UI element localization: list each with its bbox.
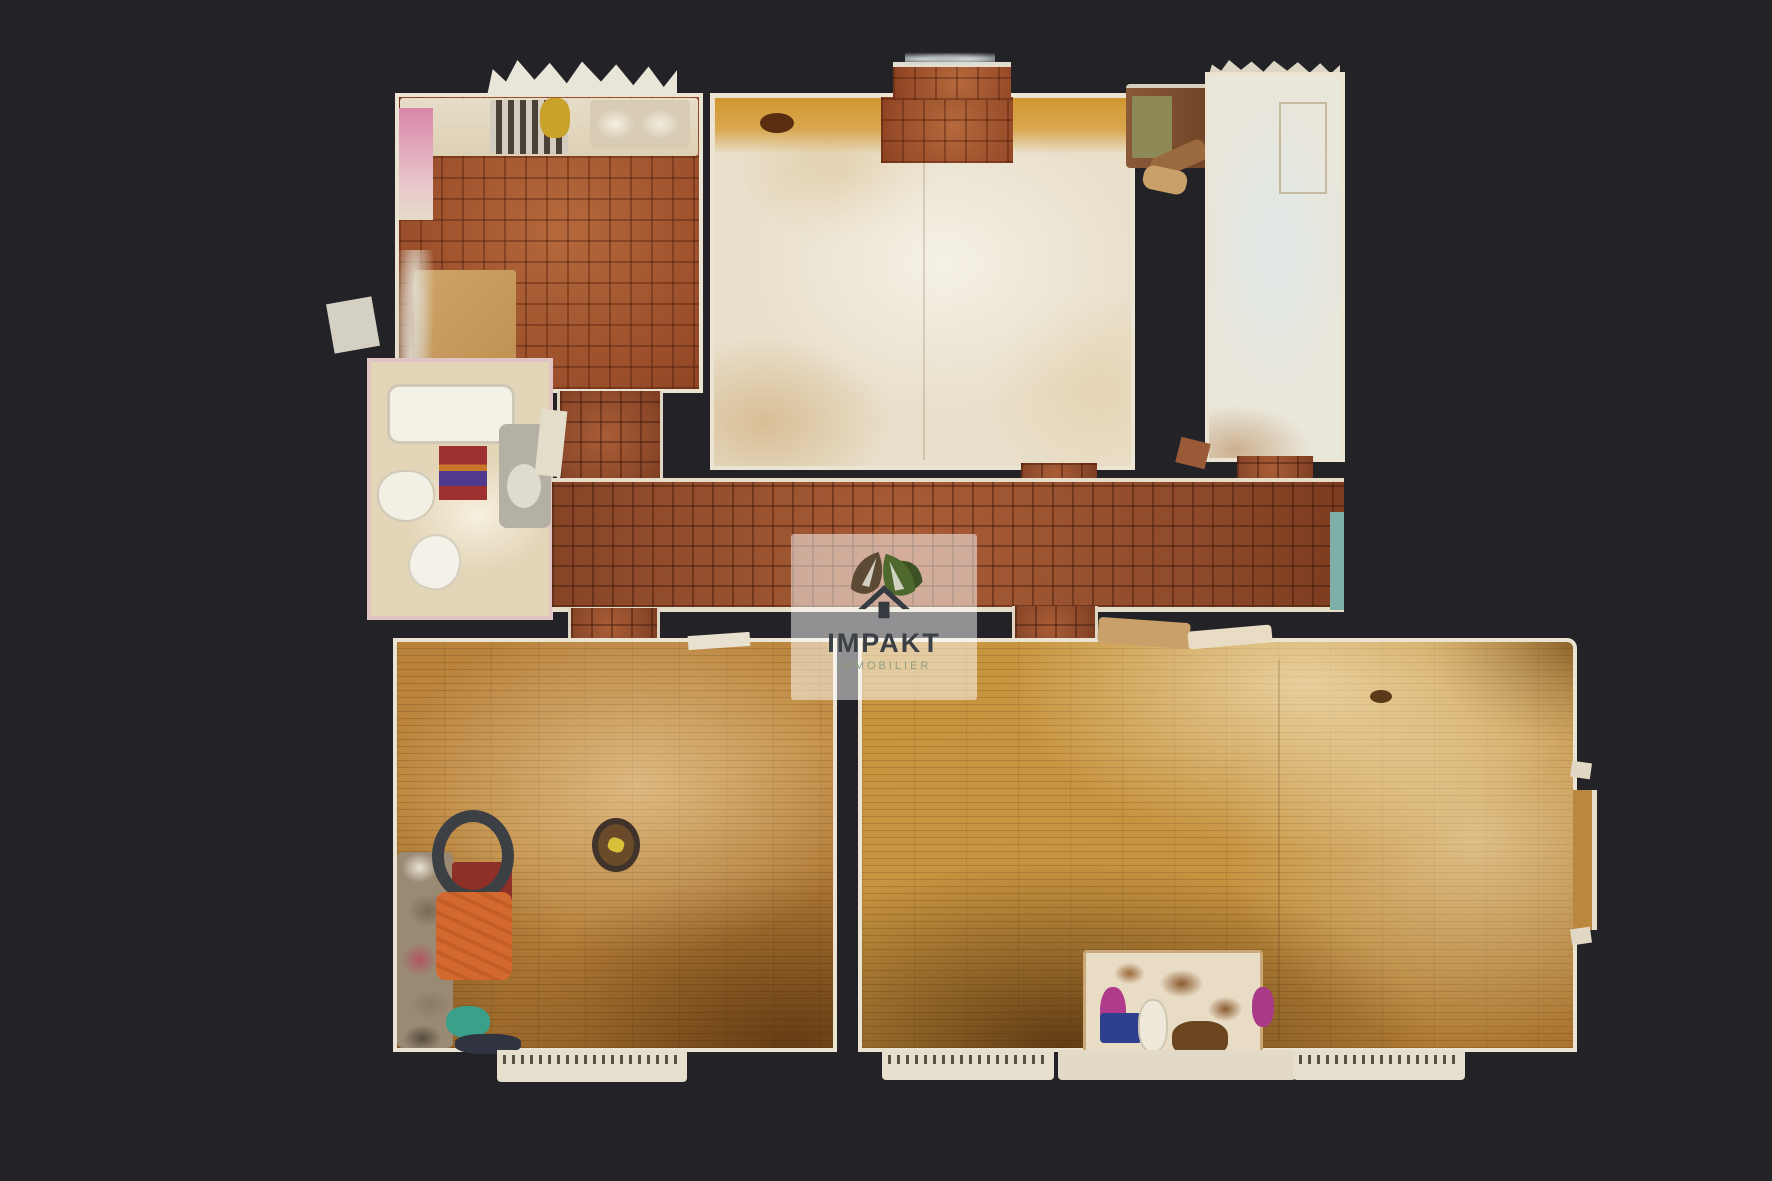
orange-armchair — [436, 892, 512, 980]
watermark-tagline: IMMOBILIER — [791, 660, 977, 672]
hall-end-teal — [1330, 512, 1344, 610]
desk-item-blue — [1100, 1013, 1142, 1043]
hall-branch-kitchen — [557, 391, 663, 483]
house-chimney-icon — [878, 602, 889, 619]
kitchen-window-curtains — [487, 60, 677, 96]
desk-chair-magenta-right — [1252, 987, 1274, 1027]
bedroom-brick-corner — [881, 97, 1013, 163]
desk-chair-white — [1138, 999, 1168, 1053]
balcony-right-b-railing — [1299, 1055, 1459, 1064]
bedroom-floor-seam — [923, 160, 925, 460]
narrow-room-rug-outline — [1279, 102, 1327, 194]
kitchen-pink-wall — [399, 108, 433, 220]
kitchen-pan — [540, 98, 570, 138]
watermark-logo — [791, 534, 977, 626]
bay-notch-top — [1570, 761, 1592, 780]
balcony-right-a — [882, 1050, 1054, 1080]
bathtub — [387, 384, 515, 444]
wardrobe-panel — [1132, 96, 1172, 158]
desk — [1083, 950, 1263, 1058]
kitchen-sink-appliances — [590, 100, 690, 148]
bike-wheel — [432, 810, 514, 902]
balcony-left-railing — [503, 1055, 681, 1064]
watermark-panel: IMPAKT IMMOBILIER — [791, 534, 977, 700]
balcony-right-b — [1293, 1050, 1465, 1080]
bay-notch-bottom — [1570, 927, 1592, 946]
bay-window-right — [1573, 790, 1597, 930]
bathroom-door-jut — [326, 296, 380, 353]
balcony-right-a-railing — [888, 1055, 1048, 1064]
leaf-left-icon — [851, 552, 882, 594]
bidet — [377, 470, 435, 522]
balcony-left — [497, 1050, 687, 1082]
narrow-room — [1205, 72, 1345, 462]
floor-dark-spot — [1370, 690, 1392, 703]
floor-stool — [592, 818, 640, 872]
bathroom-room — [367, 358, 553, 620]
floor-seam-right-room — [1278, 660, 1280, 1040]
bedroom-wall-hole — [760, 113, 794, 133]
desk-ledge — [1058, 1050, 1296, 1080]
scene-canvas[interactable]: IMPAKT IMMOBILIER — [0, 0, 1772, 1181]
bedroom-curtain-bits — [905, 52, 995, 66]
bedroom-window-bay — [893, 62, 1011, 100]
toilet — [402, 527, 469, 596]
stool-highlight — [606, 836, 626, 855]
bath-rug — [439, 446, 487, 500]
watermark-brand: IMPAKT — [791, 628, 977, 659]
